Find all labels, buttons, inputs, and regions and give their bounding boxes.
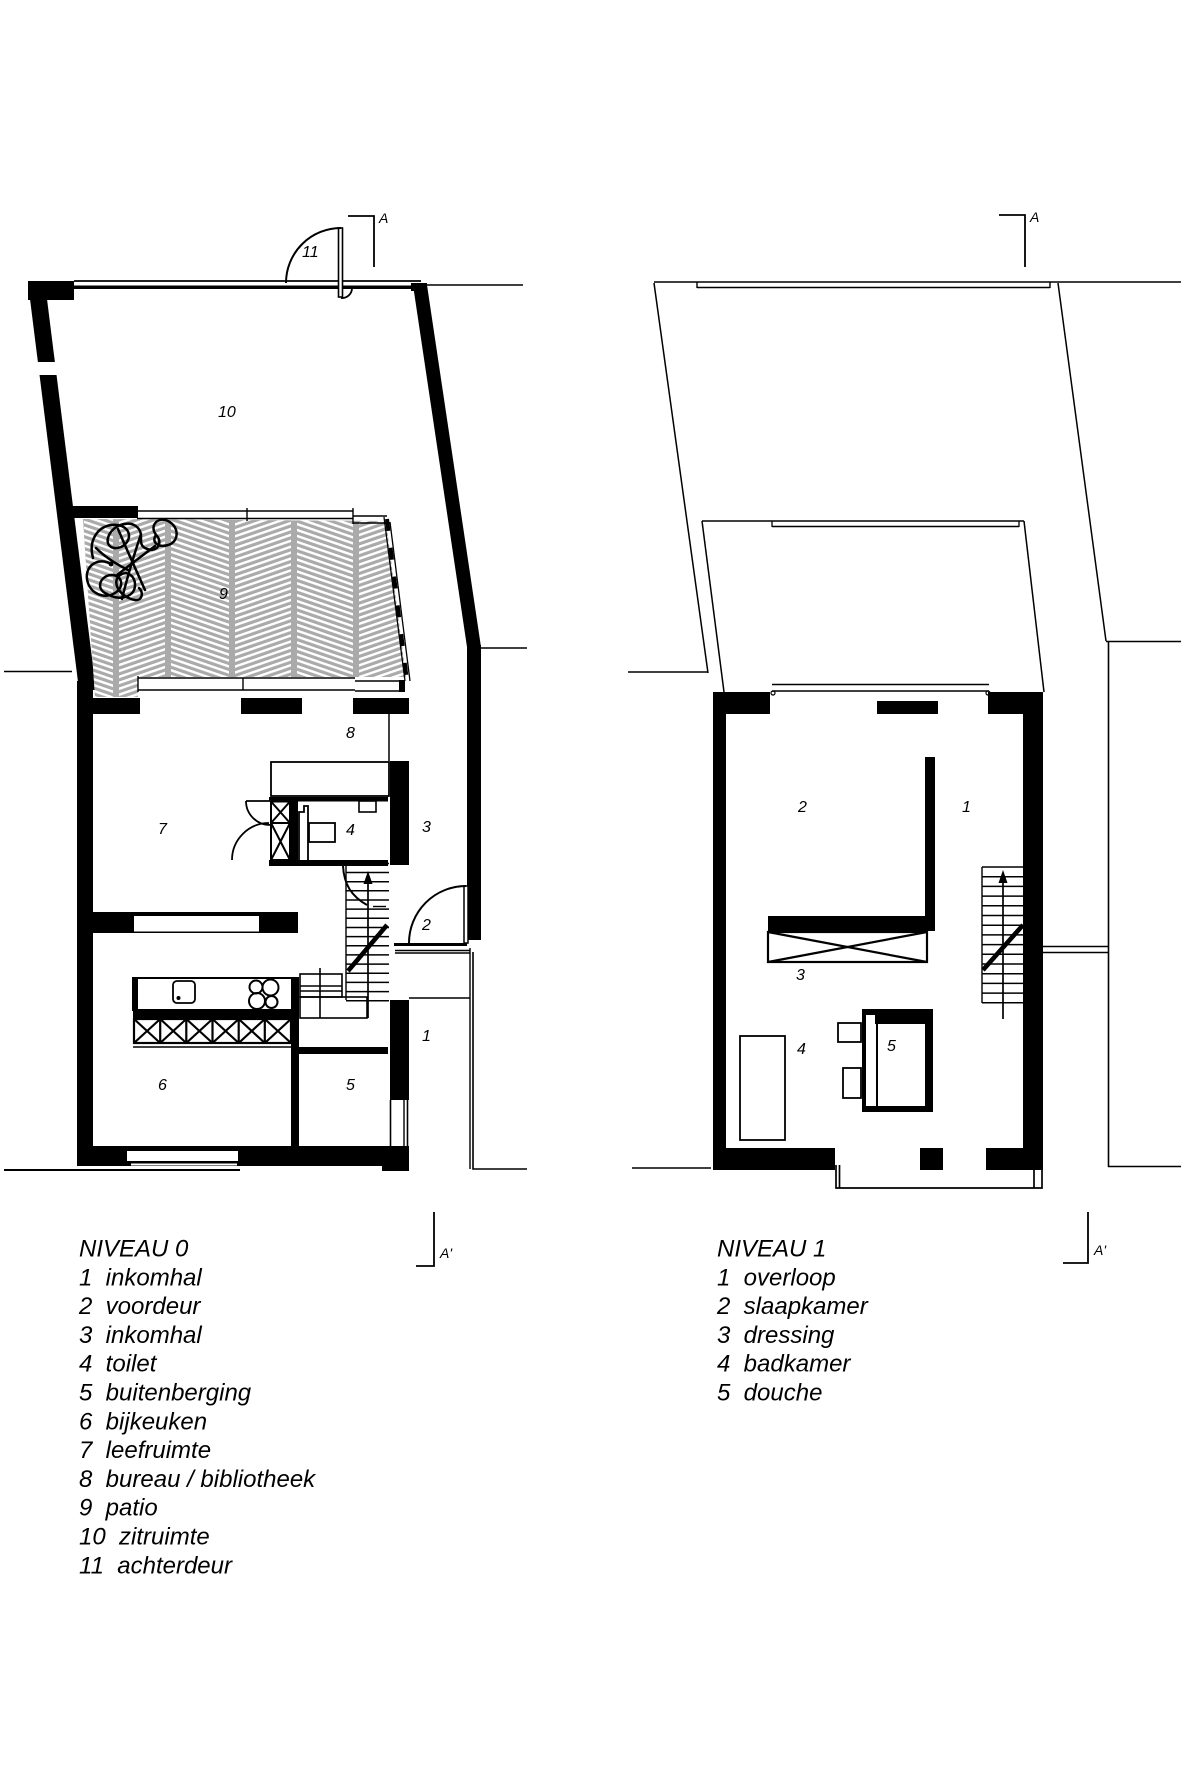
svg-text:3: 3 (796, 967, 805, 984)
svg-text:9: 9 (219, 586, 228, 603)
svg-text:1 overloop: 1 overloop (717, 1264, 836, 1291)
svg-text:3: 3 (422, 819, 431, 836)
svg-text:9 patio: 9 patio (79, 1495, 158, 1522)
svg-text:2 voordeur: 2 voordeur (78, 1293, 201, 1320)
svg-text:7 leefruimte: 7 leefruimte (79, 1437, 211, 1464)
svg-text:4 toilet: 4 toilet (79, 1351, 158, 1378)
svg-text:A': A' (1093, 1242, 1107, 1258)
svg-text:3 inkomhal: 3 inkomhal (79, 1322, 202, 1349)
svg-text:A: A (378, 210, 388, 226)
svg-text:7: 7 (158, 821, 168, 838)
svg-text:NIVEAU 1: NIVEAU 1 (717, 1236, 826, 1263)
svg-text:2: 2 (421, 917, 431, 934)
svg-text:6: 6 (158, 1077, 167, 1094)
svg-text:10 zitruimte: 10 zitruimte (79, 1524, 210, 1551)
svg-text:4 badkamer: 4 badkamer (717, 1351, 851, 1378)
svg-text:2: 2 (797, 799, 807, 816)
svg-text:5: 5 (346, 1077, 355, 1094)
svg-text:8 bureau / bibliotheek: 8 bureau / bibliotheek (79, 1466, 317, 1493)
svg-text:5 douche: 5 douche (717, 1380, 822, 1407)
svg-text:10: 10 (218, 404, 236, 421)
svg-text:A': A' (439, 1245, 453, 1261)
svg-text:11 achterdeur: 11 achterdeur (79, 1552, 233, 1579)
svg-text:NIVEAU 0: NIVEAU 0 (79, 1236, 189, 1263)
svg-text:1: 1 (962, 799, 971, 816)
svg-text:5: 5 (887, 1038, 896, 1055)
svg-text:6 bijkeuken: 6 bijkeuken (79, 1408, 207, 1435)
svg-text:5 buitenberging: 5 buitenberging (79, 1380, 252, 1407)
svg-text:8: 8 (346, 725, 355, 742)
svg-text:A: A (1029, 209, 1039, 225)
svg-text:1: 1 (422, 1028, 431, 1045)
svg-text:1 inkomhal: 1 inkomhal (79, 1264, 202, 1291)
svg-text:4: 4 (346, 822, 355, 839)
svg-text:3 dressing: 3 dressing (717, 1322, 835, 1349)
svg-text:11: 11 (302, 244, 319, 261)
svg-text:4: 4 (797, 1041, 806, 1058)
svg-text:2 slaapkamer: 2 slaapkamer (716, 1293, 869, 1320)
